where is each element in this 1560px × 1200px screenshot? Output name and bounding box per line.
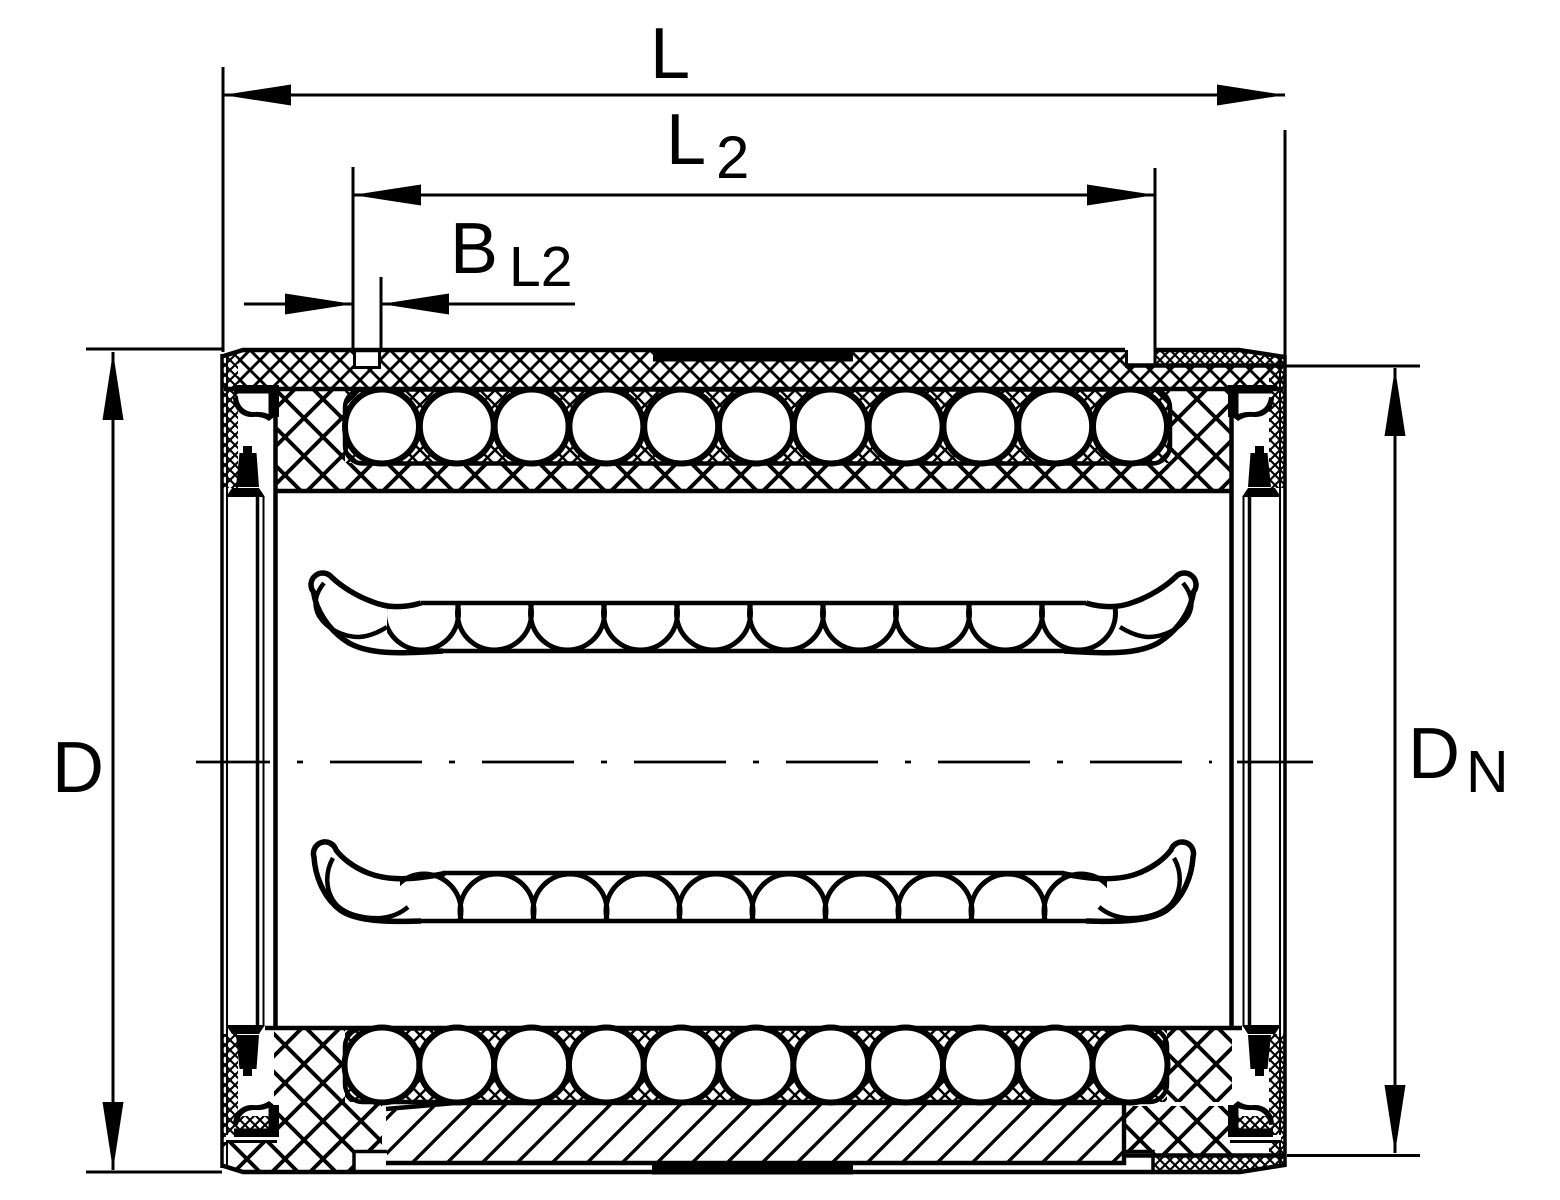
svg-text:N: N [1466, 739, 1509, 805]
svg-text:2: 2 [716, 124, 749, 191]
svg-text:D: D [1408, 714, 1460, 794]
svg-text:L: L [666, 100, 706, 180]
svg-text:B: B [450, 209, 498, 289]
svg-text:D: D [52, 728, 104, 808]
svg-text:L: L [650, 14, 690, 94]
svg-text:L2: L2 [509, 235, 572, 299]
